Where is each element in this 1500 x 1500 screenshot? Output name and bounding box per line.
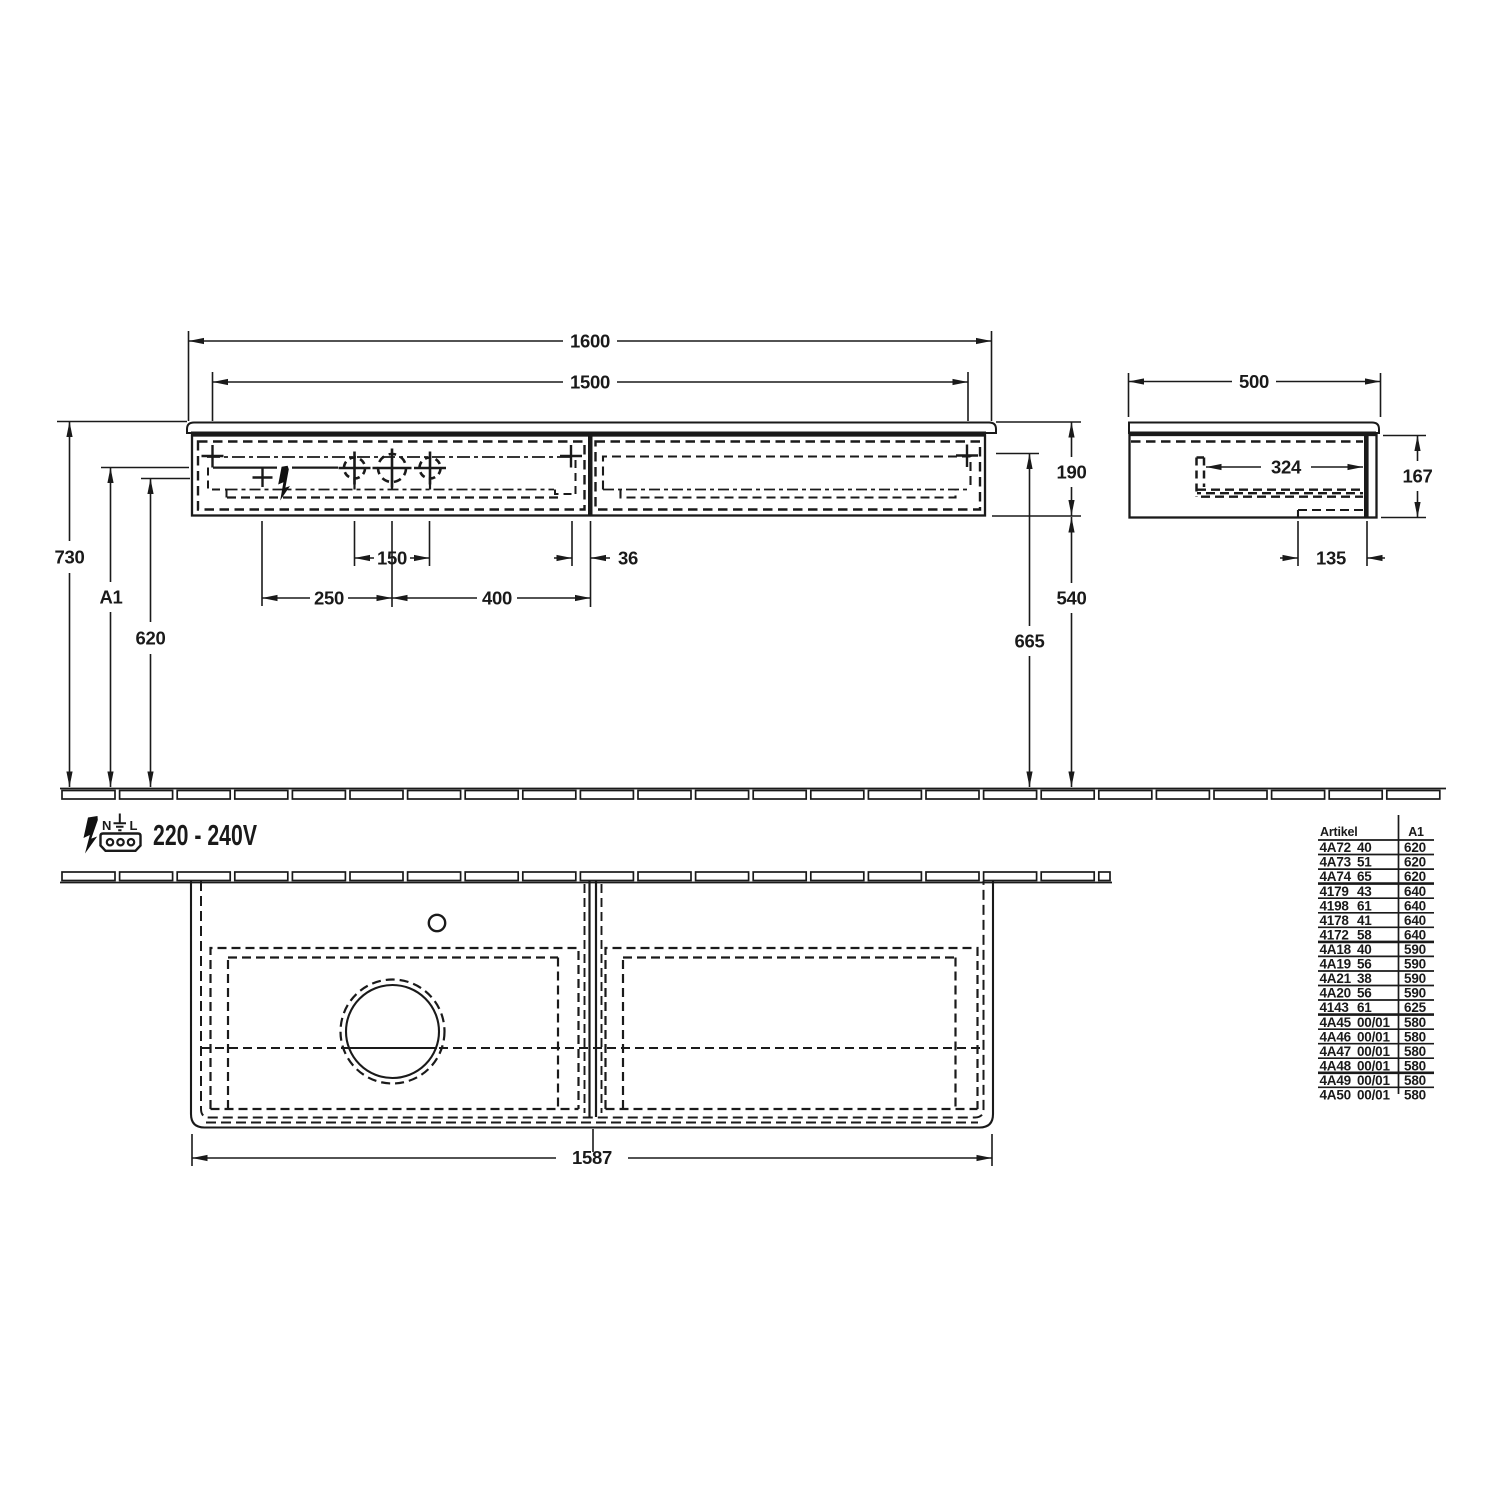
svg-text:4A48: 4A48 [1320, 1058, 1352, 1073]
svg-text:A1: A1 [99, 587, 122, 608]
svg-text:4178: 4178 [1320, 913, 1350, 928]
svg-text:220 - 240V: 220 - 240V [153, 820, 257, 852]
svg-text:190: 190 [1057, 462, 1087, 483]
svg-text:4A45: 4A45 [1320, 1015, 1352, 1030]
svg-text:150: 150 [377, 548, 407, 569]
svg-text:4198: 4198 [1320, 898, 1350, 913]
svg-text:620: 620 [1404, 840, 1426, 855]
svg-text:4A73: 4A73 [1320, 855, 1352, 870]
svg-text:1600: 1600 [570, 331, 610, 352]
svg-text:4179: 4179 [1320, 884, 1349, 899]
svg-text:640: 640 [1404, 928, 1426, 943]
svg-text:540: 540 [1057, 588, 1087, 609]
svg-text:580: 580 [1404, 1015, 1426, 1030]
svg-text:640: 640 [1404, 898, 1426, 913]
svg-text:41: 41 [1357, 913, 1372, 928]
svg-text:4A72: 4A72 [1320, 840, 1351, 855]
svg-text:A1: A1 [1408, 825, 1424, 839]
svg-text:500: 500 [1239, 371, 1269, 392]
svg-text:640: 640 [1404, 884, 1426, 899]
svg-text:580: 580 [1404, 1073, 1426, 1088]
svg-text:61: 61 [1357, 1000, 1372, 1015]
svg-text:4A19: 4A19 [1320, 957, 1351, 972]
svg-text:00/01: 00/01 [1357, 1015, 1390, 1030]
svg-text:580: 580 [1404, 1044, 1426, 1059]
svg-text:730: 730 [55, 547, 85, 568]
svg-text:Artikel: Artikel [1320, 825, 1358, 839]
svg-text:4A47: 4A47 [1320, 1044, 1351, 1059]
svg-text:L: L [130, 818, 138, 833]
svg-text:250: 250 [314, 588, 344, 609]
svg-text:167: 167 [1403, 466, 1433, 487]
svg-text:640: 640 [1404, 913, 1426, 928]
svg-text:580: 580 [1404, 1029, 1426, 1044]
svg-text:590: 590 [1404, 957, 1426, 972]
svg-text:65: 65 [1357, 869, 1372, 884]
svg-text:36: 36 [618, 548, 638, 569]
svg-text:590: 590 [1404, 942, 1426, 957]
svg-text:620: 620 [1404, 869, 1426, 884]
svg-text:4A49: 4A49 [1320, 1073, 1351, 1088]
svg-text:38: 38 [1357, 971, 1372, 986]
svg-text:665: 665 [1015, 631, 1045, 652]
svg-text:580: 580 [1404, 1058, 1426, 1073]
svg-text:135: 135 [1316, 548, 1346, 569]
svg-text:N: N [102, 818, 111, 833]
svg-text:00/01: 00/01 [1357, 1073, 1390, 1088]
svg-text:4A74: 4A74 [1320, 869, 1352, 884]
svg-text:1500: 1500 [570, 372, 610, 393]
svg-text:400: 400 [482, 588, 512, 609]
svg-text:590: 590 [1404, 986, 1426, 1001]
svg-text:00/01: 00/01 [1357, 1058, 1390, 1073]
svg-text:4A21: 4A21 [1320, 971, 1352, 986]
svg-text:4A18: 4A18 [1320, 942, 1352, 957]
svg-text:00/01: 00/01 [1357, 1088, 1390, 1103]
svg-text:4A20: 4A20 [1320, 986, 1351, 1001]
svg-text:00/01: 00/01 [1357, 1029, 1390, 1044]
svg-text:58: 58 [1357, 928, 1372, 943]
svg-text:00/01: 00/01 [1357, 1044, 1390, 1059]
svg-text:4A50: 4A50 [1320, 1088, 1351, 1103]
svg-text:43: 43 [1357, 884, 1372, 899]
svg-text:51: 51 [1357, 855, 1372, 870]
svg-text:1587: 1587 [572, 1147, 612, 1168]
svg-text:625: 625 [1404, 1000, 1427, 1015]
svg-text:4172: 4172 [1320, 928, 1349, 943]
svg-text:56: 56 [1357, 986, 1372, 1001]
svg-text:40: 40 [1357, 942, 1372, 957]
svg-text:324: 324 [1271, 457, 1302, 478]
svg-text:56: 56 [1357, 957, 1372, 972]
svg-text:4143: 4143 [1320, 1000, 1350, 1015]
svg-text:590: 590 [1404, 971, 1426, 986]
svg-text:61: 61 [1357, 898, 1372, 913]
svg-text:620: 620 [136, 628, 166, 649]
svg-text:40: 40 [1357, 840, 1372, 855]
svg-text:4A46: 4A46 [1320, 1029, 1352, 1044]
svg-text:580: 580 [1404, 1088, 1426, 1103]
svg-text:620: 620 [1404, 855, 1426, 870]
